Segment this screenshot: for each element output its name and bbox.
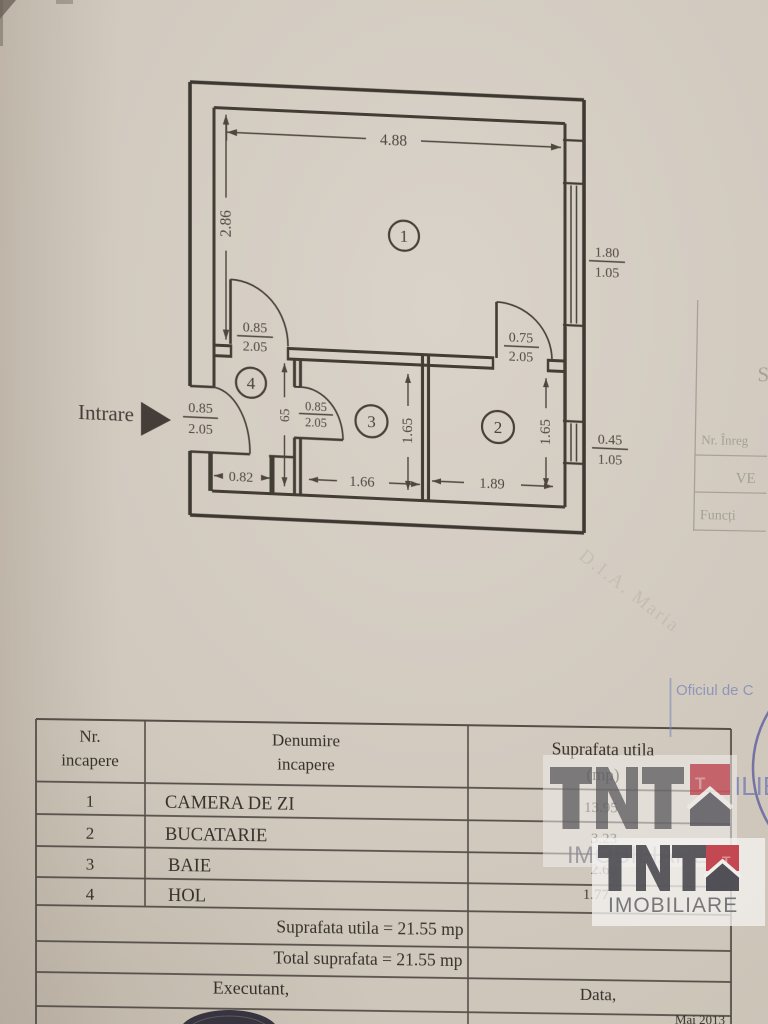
svg-text:incapere: incapere [61,750,119,770]
svg-text:4: 4 [86,885,95,904]
svg-text:incapere: incapere [277,754,335,774]
svg-text:0.85: 0.85 [188,401,212,417]
svg-text:1.80: 1.80 [595,245,619,261]
svg-text:T: T [695,774,706,793]
svg-text:2.86: 2.86 [218,209,235,237]
svg-text:Si: Si [757,362,768,386]
svg-text:2: 2 [86,824,94,843]
svg-text:3: 3 [367,412,375,431]
svg-text:Suprafata utila = 21.55 mp: Suprafata utila = 21.55 mp [276,916,464,939]
svg-text:Executant,: Executant, [213,978,289,999]
svg-text:0.45: 0.45 [598,433,622,449]
svg-text:3: 3 [86,855,94,874]
svg-text:2.05: 2.05 [188,422,212,438]
svg-text:IMOBILIARE: IMOBILIARE [608,894,738,917]
svg-text:Mai 2013: Mai 2013 [675,1012,725,1024]
svg-text:BUCATARIE: BUCATARIE [165,825,267,846]
svg-text:Oficiul de C: Oficiul de C [676,682,754,699]
svg-text:2.05: 2.05 [305,415,327,430]
svg-text:65: 65 [277,408,292,422]
svg-text:1.05: 1.05 [595,265,619,281]
svg-text:ILIE: ILIE [734,771,768,801]
svg-text:0.85: 0.85 [243,320,267,336]
svg-text:1.05: 1.05 [598,453,622,469]
svg-text:4: 4 [247,374,256,393]
svg-text:1.65: 1.65 [400,417,416,444]
svg-text:0.75: 0.75 [509,331,533,347]
svg-text:0.82: 0.82 [229,470,253,486]
svg-text:2.05: 2.05 [243,339,267,355]
svg-text:Funcți: Funcți [700,508,736,524]
svg-text:Denumire: Denumire [272,730,340,750]
svg-text:0.85: 0.85 [305,399,327,414]
svg-text:1.66: 1.66 [349,474,374,491]
svg-text:1.65: 1.65 [538,419,554,446]
svg-text:1: 1 [86,792,94,811]
svg-text:Data,: Data, [580,985,616,1005]
svg-text:1.89: 1.89 [479,476,504,493]
svg-text:HOL: HOL [168,886,206,907]
svg-text:2.05: 2.05 [509,350,533,366]
svg-text:Intrare: Intrare [78,400,134,427]
svg-text:BAIE: BAIE [168,856,211,877]
svg-text:1: 1 [400,227,408,246]
svg-text:Total suprafata = 21.55 mp: Total suprafata = 21.55 mp [274,947,463,970]
svg-text:Nr. Înreg: Nr. Înreg [701,432,749,448]
svg-text:VE: VE [735,471,755,487]
svg-text:4.88: 4.88 [380,132,407,150]
svg-text:2: 2 [494,418,502,437]
svg-text:CAMERA DE ZI: CAMERA DE ZI [165,793,294,815]
svg-text:Nr.: Nr. [79,727,100,746]
